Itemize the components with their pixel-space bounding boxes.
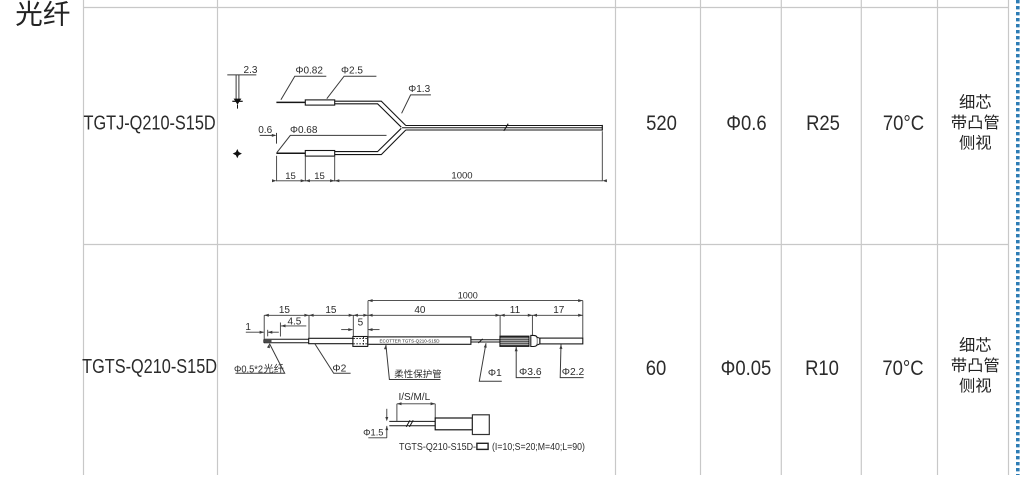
svg-text:Φ0.68: Φ0.68 (290, 125, 318, 136)
svg-text:Φ1: Φ1 (488, 368, 502, 379)
svg-text:0.6: 0.6 (258, 125, 272, 136)
svg-text:Φ0.05: Φ0.05 (721, 357, 772, 380)
svg-text:Φ3.6: Φ3.6 (519, 367, 542, 378)
svg-text:I/S/M/L: I/S/M/L (398, 392, 430, 403)
svg-text:70°C: 70°C (882, 357, 923, 380)
svg-text:15: 15 (314, 171, 325, 182)
svg-text:Φ0.5*2: Φ0.5*2 (234, 364, 263, 376)
svg-text:15: 15 (285, 171, 296, 182)
svg-text:R25: R25 (806, 112, 840, 135)
svg-text:5: 5 (358, 318, 364, 329)
svg-text:TGTS-Q210-S15D: TGTS-Q210-S15D (82, 355, 217, 378)
svg-text:15: 15 (325, 305, 337, 316)
svg-text:17: 17 (553, 305, 565, 316)
svg-text:11: 11 (510, 305, 521, 316)
svg-text:Φ1.3: Φ1.3 (408, 84, 430, 95)
svg-text:Φ2.2: Φ2.2 (562, 367, 585, 378)
svg-text:1: 1 (245, 322, 251, 333)
svg-text:R10: R10 (805, 357, 839, 380)
svg-text:520: 520 (646, 112, 677, 135)
svg-text:60: 60 (646, 357, 667, 380)
svg-text:1000: 1000 (451, 170, 472, 181)
svg-text:Φ0.6: Φ0.6 (726, 112, 766, 135)
svg-text:TGTS-Q210-S15D-: TGTS-Q210-S15D- (399, 442, 476, 454)
svg-text:15: 15 (279, 305, 291, 316)
svg-text:1000: 1000 (458, 290, 478, 300)
svg-text:70°C: 70°C (883, 112, 924, 135)
svg-text:40: 40 (414, 305, 426, 316)
svg-text:Φ0.82: Φ0.82 (295, 65, 323, 76)
svg-text:TGTJ-Q210-S15D: TGTJ-Q210-S15D (84, 111, 216, 134)
svg-text:ECOTTER TGTS-Q210-S15D: ECOTTER TGTS-Q210-S15D (380, 338, 441, 343)
svg-text:Φ2.5: Φ2.5 (341, 65, 363, 76)
svg-text:(I=10;S=20;M=40;L=90): (I=10;S=20;M=40;L=90) (492, 442, 585, 454)
svg-text:Φ1.5: Φ1.5 (363, 427, 383, 437)
